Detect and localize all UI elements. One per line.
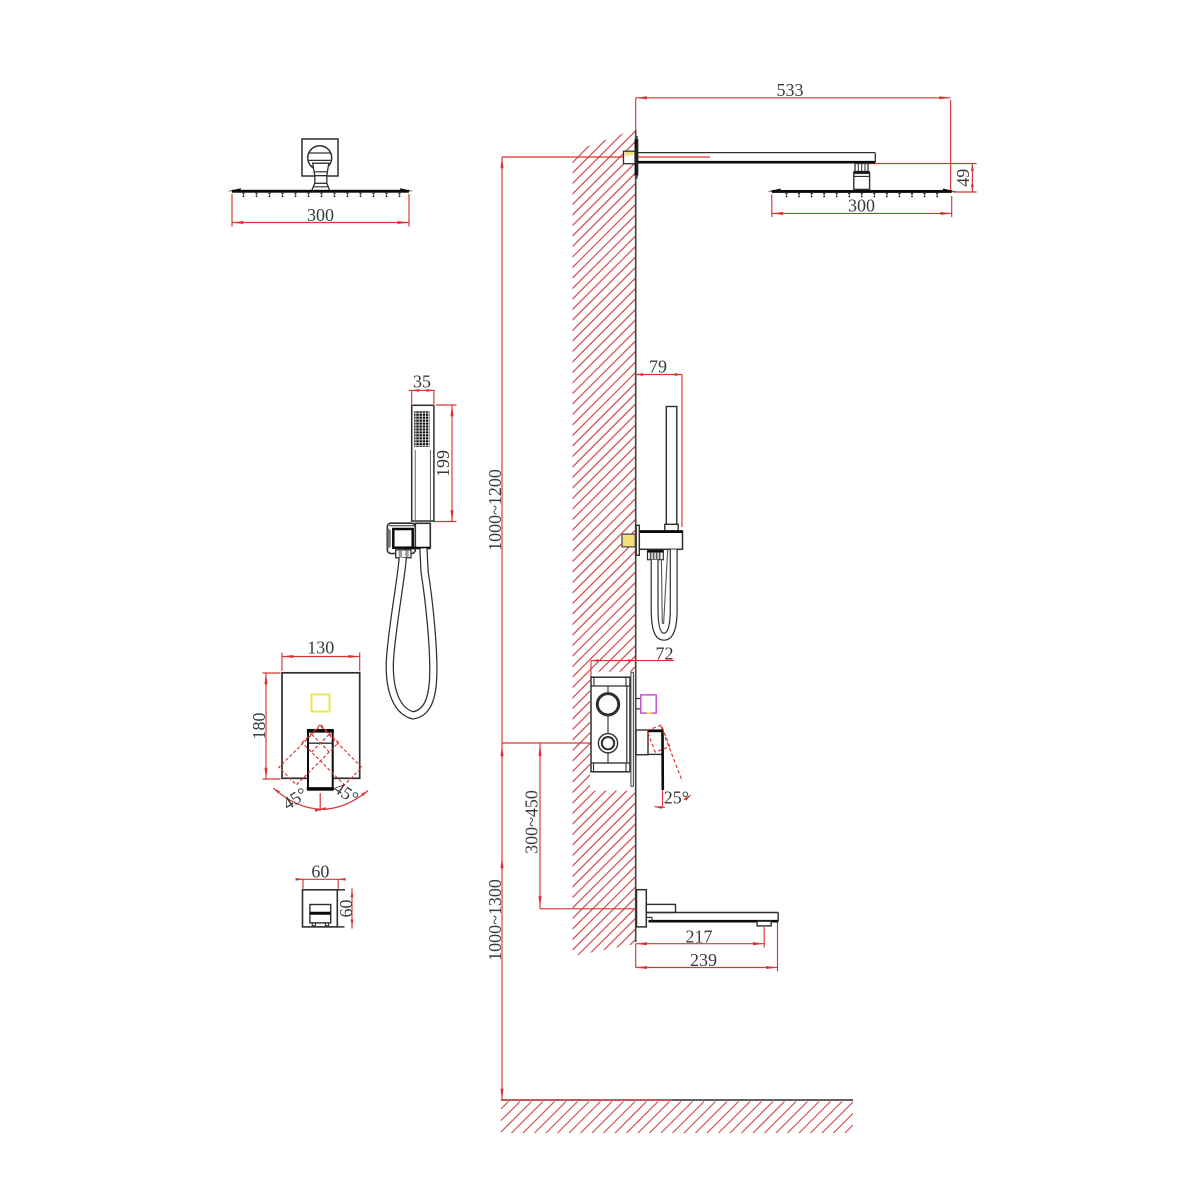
svg-text:199: 199 xyxy=(433,450,453,477)
svg-text:25°: 25° xyxy=(664,787,689,807)
svg-text:300: 300 xyxy=(307,205,334,225)
svg-text:1000~1200: 1000~1200 xyxy=(485,469,505,551)
svg-text:180: 180 xyxy=(249,713,269,740)
svg-text:49: 49 xyxy=(953,169,973,187)
svg-text:300: 300 xyxy=(848,196,875,216)
svg-text:60: 60 xyxy=(311,862,329,882)
svg-text:217: 217 xyxy=(686,926,713,946)
svg-text:60: 60 xyxy=(336,900,356,918)
svg-text:300~450: 300~450 xyxy=(522,790,542,854)
svg-text:79: 79 xyxy=(649,356,667,376)
svg-text:72: 72 xyxy=(656,643,674,663)
svg-text:533: 533 xyxy=(777,80,804,100)
svg-text:35: 35 xyxy=(413,371,431,391)
svg-text:1000~1300: 1000~1300 xyxy=(485,879,505,961)
svg-text:239: 239 xyxy=(690,950,717,970)
svg-text:130: 130 xyxy=(307,637,334,657)
